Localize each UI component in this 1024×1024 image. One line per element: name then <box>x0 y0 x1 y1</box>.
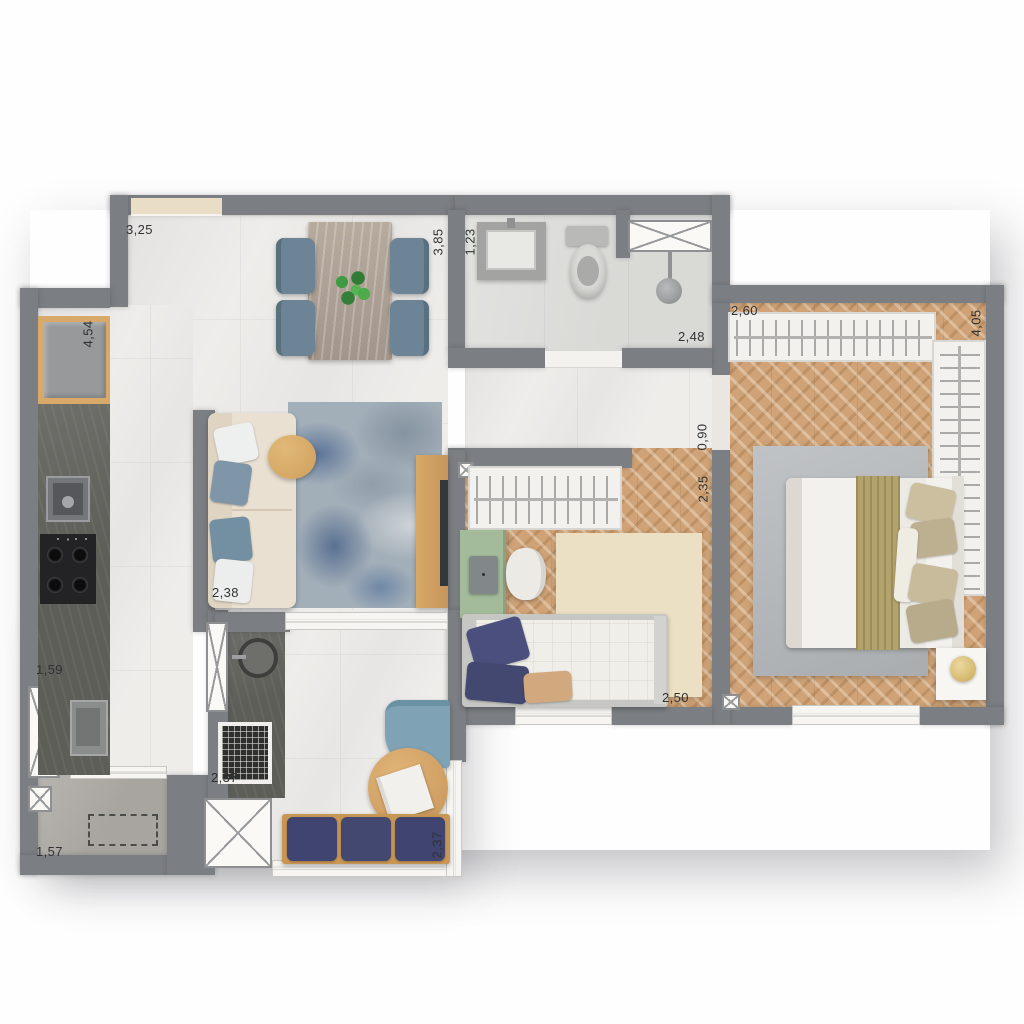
bedroom1-door-threshold <box>712 375 730 450</box>
nightstand-lamp <box>950 656 976 682</box>
gourmet-big-shaft <box>204 798 272 868</box>
kitchen-small-shaft <box>28 786 52 812</box>
toilet-bowl <box>570 244 606 298</box>
laundry-tub-basin <box>76 708 100 746</box>
wardrobe-rail <box>474 498 618 501</box>
side-table-round <box>268 435 316 479</box>
olive-throw <box>856 476 900 650</box>
floor-bedroom2-doorway <box>630 448 712 470</box>
gourmet-tall-shaft <box>206 622 228 712</box>
table-plant <box>330 268 374 314</box>
navy-pillow <box>464 661 529 704</box>
wall-bedroom1-bottom-right <box>920 707 1004 725</box>
burner <box>46 546 64 564</box>
burner <box>71 576 89 594</box>
fridge <box>38 316 110 404</box>
vanity-sink <box>486 230 536 270</box>
wall-bedroom1-right <box>986 285 1004 725</box>
dim-2-35: 2,35 <box>696 476 711 503</box>
bench-cushion-navy <box>341 817 391 861</box>
gourmet-faucet <box>232 655 246 659</box>
bedroom1-window <box>792 705 920 725</box>
dim-2-60: 2,60 <box>731 303 758 318</box>
wall-bedroom1-top <box>712 285 1004 303</box>
wall-bedroom2-bottom-right <box>612 707 712 725</box>
dim-1-23: 1,23 <box>463 229 478 256</box>
tan-pillow <box>523 670 573 703</box>
floor-plan: 3,25 3,85 1,23 2,48 2,60 4,05 4,54 0,90 … <box>0 0 1024 1024</box>
bathroom-shaft-box <box>628 220 712 252</box>
dim-3-85: 3,85 <box>431 229 446 256</box>
dining-top-window <box>131 198 222 216</box>
dim-2-37-grill: 2,37 <box>211 770 238 785</box>
laptop-dot <box>482 573 485 576</box>
dim-2-50: 2,50 <box>662 690 689 705</box>
desk-chair <box>506 548 546 600</box>
laundry-tub <box>70 700 108 756</box>
dim-2-37-balcony: 2,37 <box>430 832 445 859</box>
dim-2-38: 2,38 <box>212 585 239 600</box>
sofa-pillow-blue <box>209 516 253 564</box>
laptop <box>469 556 498 594</box>
dim-2-48: 2,48 <box>678 329 705 344</box>
toilet-lid <box>577 256 599 286</box>
wardrobe-rail <box>734 336 932 339</box>
vanity <box>477 222 546 280</box>
bathroom-door-threshold <box>545 350 622 368</box>
appliance-slot-dashed <box>88 814 158 846</box>
dining-chair <box>390 300 429 356</box>
dining-chair <box>276 238 315 294</box>
dining-chair <box>276 300 315 356</box>
bedroom1-wardrobe-top <box>728 312 936 362</box>
bedroom1-corner-shaft <box>722 694 740 710</box>
dining-chair <box>390 238 429 294</box>
sofa-pillow-blue <box>209 460 252 507</box>
kitchen-sink <box>46 476 90 522</box>
wall-bathroom-bottom-right <box>622 348 712 368</box>
burner <box>71 546 89 564</box>
toilet <box>566 226 608 246</box>
cooktop <box>40 534 96 604</box>
sofa-seat-line <box>232 509 292 511</box>
dim-1-57: 1,57 <box>36 844 63 859</box>
wall-dining-left <box>110 195 128 307</box>
living-balcony-sliding-door <box>285 612 448 630</box>
gourmet-round-sink <box>238 638 278 678</box>
dim-4-54: 4,54 <box>81 321 96 348</box>
wall-bathroom-bottom-left <box>448 348 545 368</box>
dim-3-25: 3,25 <box>126 222 153 237</box>
wall-top-bathroom <box>455 195 730 215</box>
dim-4-05: 4,05 <box>969 310 984 337</box>
wall-bedroom2-top <box>448 448 632 468</box>
shower-head <box>656 278 682 304</box>
fridge-body <box>44 322 106 398</box>
cooktop-knobs <box>48 537 88 542</box>
tv <box>440 480 448 586</box>
duvet-fold <box>786 478 802 648</box>
burner <box>46 576 64 594</box>
dim-1-59: 1,59 <box>36 662 63 677</box>
vanity-faucet <box>507 218 515 228</box>
bedroom2-window <box>515 705 612 725</box>
wall-between-bedrooms <box>712 450 730 725</box>
bedroom2-wardrobe <box>468 466 622 530</box>
bench-cushion-navy <box>287 817 337 861</box>
dim-0-90: 0,90 <box>695 424 710 451</box>
kitchen-faucet <box>62 496 74 508</box>
